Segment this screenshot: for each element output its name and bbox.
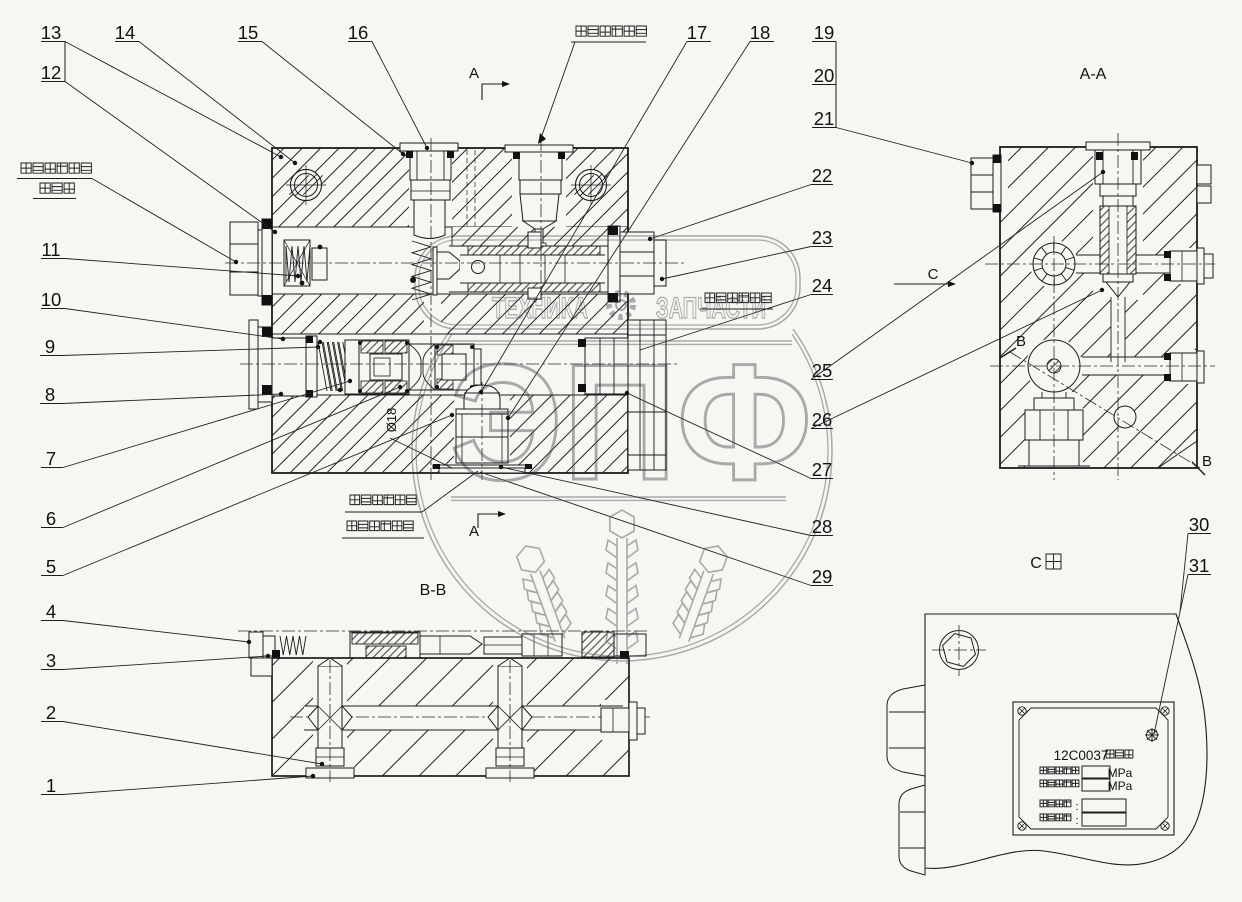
svg-text:17: 17	[687, 22, 708, 43]
svg-text:2: 2	[46, 702, 56, 723]
svg-text:16: 16	[348, 22, 369, 43]
svg-text:B: B	[1016, 333, 1026, 350]
svg-text::: :	[1075, 815, 1078, 827]
svg-text:9: 9	[45, 336, 55, 357]
svg-text:C: C	[928, 266, 939, 283]
svg-text:10: 10	[41, 289, 62, 310]
svg-text:12C0037: 12C0037	[1054, 748, 1109, 763]
svg-text:19: 19	[814, 22, 835, 43]
svg-text:ТЕХНИКА: ТЕХНИКА	[492, 292, 588, 325]
svg-text:ЗАПЧАСТИ: ЗАПЧАСТИ	[656, 292, 766, 325]
svg-text:22: 22	[812, 165, 833, 186]
svg-text:14: 14	[115, 22, 136, 43]
svg-text:1: 1	[46, 775, 56, 796]
svg-text:8: 8	[45, 384, 55, 405]
svg-text:6: 6	[46, 508, 56, 529]
svg-text:A: A	[469, 65, 479, 82]
svg-text:7: 7	[46, 448, 56, 469]
svg-text:3: 3	[46, 650, 56, 671]
svg-text:27: 27	[812, 459, 833, 480]
svg-text:20: 20	[814, 65, 835, 86]
svg-text:4: 4	[46, 601, 56, 622]
svg-text:18: 18	[750, 22, 771, 43]
svg-text::: :	[1075, 801, 1078, 813]
svg-text:21: 21	[814, 108, 835, 129]
svg-text:MPa: MPa	[1108, 766, 1133, 780]
svg-text:MPa: MPa	[1108, 779, 1133, 793]
svg-text:23: 23	[812, 227, 833, 248]
svg-text:31: 31	[1189, 555, 1210, 576]
svg-text:12: 12	[41, 62, 62, 83]
svg-text:A-A: A-A	[1080, 66, 1107, 83]
svg-text:C: C	[1030, 555, 1042, 572]
svg-text:15: 15	[238, 22, 259, 43]
svg-text:24: 24	[812, 275, 833, 296]
svg-text:13: 13	[41, 22, 62, 43]
svg-text:B-B: B-B	[420, 582, 447, 599]
svg-text:ЭПФ: ЭПФ	[450, 330, 812, 514]
svg-text:5: 5	[46, 556, 56, 577]
svg-text:29: 29	[812, 566, 833, 587]
svg-text:30: 30	[1189, 514, 1210, 535]
svg-text:B: B	[1202, 453, 1212, 470]
svg-text:11: 11	[41, 239, 60, 260]
svg-text:Ø18: Ø18	[384, 408, 399, 433]
